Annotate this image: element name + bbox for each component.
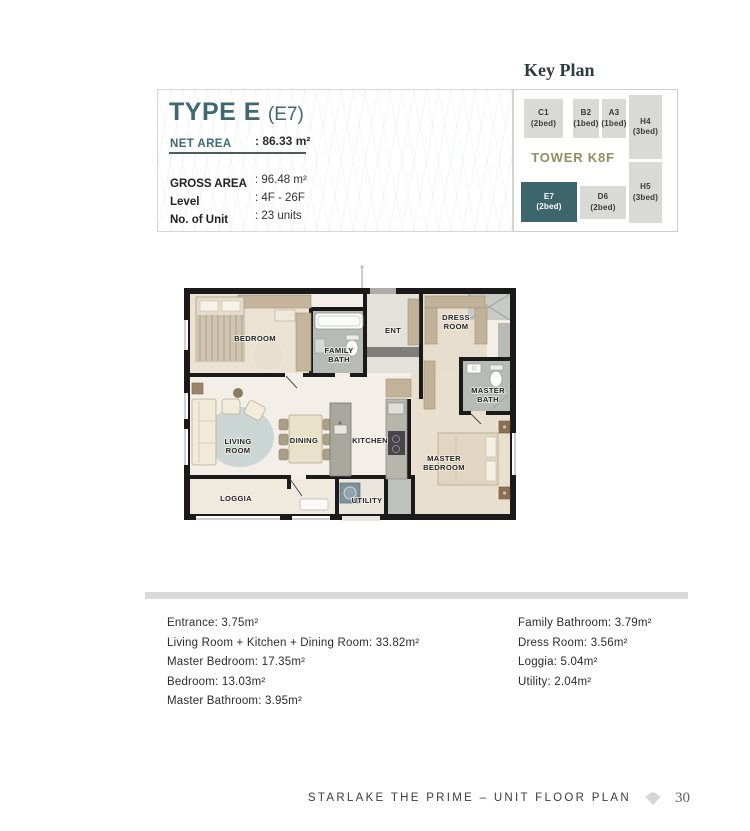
area-item: Living Room + Kitchen + Dining Room: 33.… <box>167 634 419 654</box>
keyplan-cell-c1: C1 (2bed) <box>524 99 563 138</box>
area-summary-left: Entrance: 3.75m² Living Room + Kitchen +… <box>167 614 419 712</box>
diamond-icon <box>645 792 661 805</box>
keyplan-cell-d6: D6 (2bed) <box>580 186 626 219</box>
area-item: Bedroom: 13.03m² <box>167 673 419 693</box>
level-value: : 4F - 26F <box>255 192 305 204</box>
cell-code: D6 <box>598 192 609 202</box>
area-item: Family Bathroom: 3.79m² <box>518 614 652 634</box>
unit-type-code: (E7) <box>268 104 304 125</box>
cell-code: C1 <box>538 108 549 118</box>
keyplan-cell-e7-highlighted: E7 (2bed) <box>521 182 577 222</box>
net-area-row: NET AREA : 86.33 m² <box>170 134 500 152</box>
cell-code: H5 <box>640 182 651 192</box>
keyplan-cell-h5: H5 (3bed) <box>629 162 662 223</box>
room-label-living-1: LIVING <box>224 437 251 446</box>
key-plan-title: Key Plan <box>524 60 595 81</box>
cell-code: H4 <box>640 117 651 127</box>
area-item: Loggia: 5.04m² <box>518 653 652 673</box>
net-area-label: NET AREA <box>170 138 232 150</box>
room-label-master-bath-2: BATH <box>477 395 499 404</box>
room-label-master-bath-1: MASTER <box>471 386 505 395</box>
area-summary-right: Family Bathroom: 3.79m² Dress Room: 3.56… <box>518 614 652 692</box>
spec-row-level: Level : 4F - 26F <box>170 192 500 210</box>
room-label-utility: UTILITY <box>352 496 383 505</box>
cell-code: A3 <box>609 108 620 118</box>
keyplan-cell-h4: H4 (3bed) <box>629 95 662 159</box>
area-item: Utility: 2.04m² <box>518 673 652 693</box>
title-divider-line <box>169 152 306 154</box>
brochure-page: TYPE E(E7) NET AREA : 86.33 m² GROSS ARE… <box>0 0 750 831</box>
room-label-living-2: ROOM <box>226 446 251 455</box>
unit-spec-rows: GROSS AREA : 96.48 m² Level : 4F - 26F N… <box>170 174 500 228</box>
area-item: Master Bathroom: 3.95m² <box>167 692 419 712</box>
unit-count-label: No. of Unit <box>170 214 228 226</box>
room-label-dress-2: ROOM <box>444 322 469 331</box>
cell-beds: (3bed) <box>633 193 658 203</box>
area-item: Dress Room: 3.56m² <box>518 634 652 654</box>
cell-beds: (1bed) <box>601 119 626 129</box>
floor-plan: BEDROOM FAMILY BATH ENT DRESS ROOM MASTE… <box>180 263 520 532</box>
unit-info-panel: TYPE E(E7) NET AREA : 86.33 m² GROSS ARE… <box>157 89 513 232</box>
floor-plan-image: BEDROOM FAMILY BATH ENT DRESS ROOM MASTE… <box>180 263 520 527</box>
gross-area-label: GROSS AREA <box>170 178 247 190</box>
room-label-dining: DINING <box>290 436 318 445</box>
room-label-ent: ENT <box>385 326 401 335</box>
tower-label: TOWER K8F <box>520 150 626 165</box>
room-label-loggia: LOGGIA <box>220 494 252 503</box>
room-label-family-bath-2: BATH <box>328 355 350 364</box>
keyplan-cell-a3: A3 (1bed) <box>602 99 626 138</box>
area-item: Master Bedroom: 17.35m² <box>167 653 419 673</box>
spec-row-units: No. of Unit : 23 units <box>170 210 500 228</box>
section-divider <box>145 592 688 599</box>
cell-code: E7 <box>544 192 554 202</box>
cell-code: B2 <box>581 108 592 118</box>
room-label-family-bath-1: FAMILY <box>325 346 354 355</box>
cell-beds: (1bed) <box>573 119 598 129</box>
room-label-master-bedroom-1: MASTER <box>427 454 461 463</box>
cell-beds: (2bed) <box>531 119 556 129</box>
unit-type-title-row: TYPE E(E7) <box>169 98 304 127</box>
page-number: 30 <box>675 790 690 807</box>
room-label-bedroom: BEDROOM <box>234 334 276 343</box>
room-label-dress-1: DRESS <box>442 313 470 322</box>
gross-area-value: : 96.48 m² <box>255 174 307 186</box>
cell-beds: (3bed) <box>633 127 658 137</box>
key-plan-diagram: C1 (2bed) B2 (1bed) A3 (1bed) H4 (3bed) … <box>513 89 678 232</box>
cell-beds: (2bed) <box>590 203 615 213</box>
area-item: Entrance: 3.75m² <box>167 614 419 634</box>
spec-row-gross-area: GROSS AREA : 96.48 m² <box>170 174 500 192</box>
footer-title: STARLAKE THE PRIME – UNIT FLOOR PLAN <box>308 792 631 804</box>
keyplan-cell-b2: B2 (1bed) <box>573 99 599 138</box>
cell-beds: (2bed) <box>536 202 561 212</box>
room-label-kitchen: KITCHEN <box>352 436 388 445</box>
unit-type-title: TYPE E <box>169 98 261 126</box>
room-label-master-bedroom-2: BEDROOM <box>423 463 465 472</box>
unit-count-value: : 23 units <box>255 210 302 222</box>
net-area-value: : 86.33 m² <box>255 134 310 148</box>
page-footer: STARLAKE THE PRIME – UNIT FLOOR PLAN 30 <box>300 788 690 808</box>
level-label: Level <box>170 196 199 208</box>
